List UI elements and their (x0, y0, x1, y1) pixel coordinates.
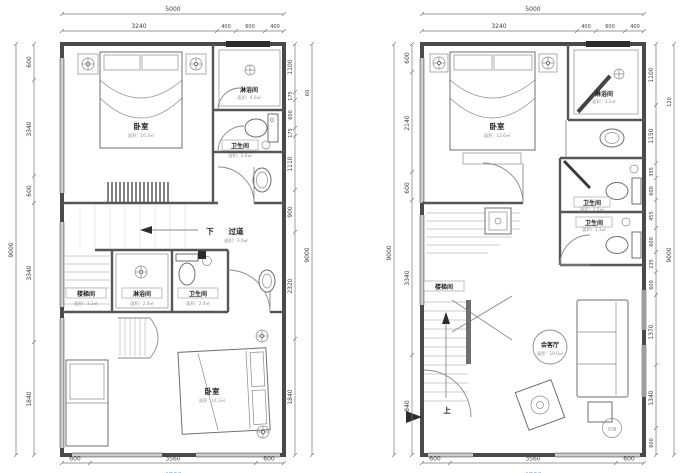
room-label-living: 会客厅 (541, 341, 559, 349)
coffee-table-icon (515, 380, 564, 431)
room-label-bath: 卫生间 (189, 290, 207, 298)
dim-label: 600 (649, 280, 655, 290)
room-area-label: 面积：14.2㎡ (199, 397, 226, 404)
dim-label: 9000 (386, 245, 393, 260)
ceiling-lamp-icon (542, 57, 554, 69)
window-lintel (226, 41, 270, 47)
ceiling-lamp-icon (256, 330, 268, 342)
stairs-icon (108, 182, 168, 202)
door-arc (560, 235, 590, 265)
floor-plan-sheet: 卧室 面积：16.3㎡ 淋浴间 面积：4.0㎡ 卫生间 面积：2.6㎡ 下 过道… (0, 0, 694, 473)
dim-label: 400 (630, 24, 640, 30)
dim-label: 600 (404, 52, 411, 64)
dim-label: 1840 (26, 391, 33, 406)
ceiling-lamp-icon (135, 266, 147, 278)
dim-label: 9000 (8, 242, 15, 257)
dim-label: 1110 (287, 156, 294, 171)
sink-icon (253, 168, 271, 192)
dim-label: 600 (263, 456, 275, 463)
dim-label: 9000 (304, 247, 311, 262)
room-label-bath: 卫生间 (231, 142, 249, 150)
appliance (198, 251, 206, 259)
ceiling-lamp-icon (82, 58, 94, 70)
room-label-bedroom: 卧室 (134, 121, 149, 131)
room-label-shower: 淋浴间 (595, 90, 613, 98)
room-label-bath: 卫生间 (583, 199, 601, 207)
dim-label: 60 (305, 90, 311, 96)
door-leaf (406, 411, 422, 423)
dim-label: 600 (649, 237, 655, 247)
stairs-down-label: 下 (206, 227, 214, 236)
dim-label: 600 (649, 438, 655, 448)
dim-label: 900 (287, 206, 294, 218)
dim-label: 3560 (525, 456, 540, 463)
room-label-shower: 淋浴间 (240, 86, 258, 94)
room-area-label: 面积：19.0㎡ (537, 350, 564, 357)
dim-label: 600 (649, 186, 655, 196)
room-area-label: 面积：1.3㎡ (582, 226, 606, 233)
stairs-icon (118, 318, 158, 358)
stair-break-line (452, 296, 512, 340)
window-lintel (586, 41, 630, 47)
ceiling-lamp-icon (190, 58, 202, 70)
room-area-label: 面积：2.8㎡ (130, 300, 154, 307)
dim-label: 3340 (26, 265, 33, 280)
dim-label: 175 (288, 128, 294, 138)
dim-label: 400 (270, 24, 280, 30)
room-area-label: 面积：12.6㎡ (484, 132, 511, 139)
dim-label: 455 (649, 211, 655, 221)
ceiling-lamp-icon (245, 65, 255, 75)
dim-label: 1150 (648, 128, 655, 143)
dim-label: 3340 (404, 270, 411, 285)
dim-label: 3240 (131, 23, 146, 30)
dim-label: 600 (245, 24, 255, 30)
dim-label: 5000 (165, 6, 180, 13)
dim-label: 600 (26, 185, 33, 197)
door-arc (483, 163, 523, 203)
dim-label: 1840 (287, 389, 294, 404)
room-area-label: 面积：3.2㎡ (592, 98, 616, 105)
floor-plan-right: 空调 卧室 面积：12.6㎡ 淋浴间 面积：3.2㎡ 卫生间 面积：1.5㎡ 卫… (386, 6, 676, 473)
toilet-icon (606, 232, 641, 258)
fixtures-right: 空调 (406, 50, 641, 438)
up-arrow-icon (442, 312, 450, 398)
dim-label: 335 (649, 167, 655, 177)
sink-icon (259, 270, 275, 292)
door-leaf (564, 161, 590, 188)
living-room-bubble: 会客厅 面积：19.0㎡ (533, 330, 567, 364)
toilet-icon (176, 254, 198, 285)
room-area-label: 面积：2.4㎡ (186, 300, 210, 307)
dim-label: 600 (26, 56, 33, 68)
dim-label: 1100 (648, 67, 655, 82)
dim-label: 600 (605, 24, 615, 30)
floor-plan-left: 卧室 面积：16.3㎡ 淋浴间 面积：4.0㎡ 卫生间 面积：2.6㎡ 下 过道… (8, 6, 314, 473)
bed-icon (450, 52, 535, 164)
room-label-bedroom: 卧室 (490, 121, 505, 131)
shower-tray (116, 254, 168, 308)
dim-label: 400 (221, 24, 231, 30)
room-label-bedroom: 卧室 (205, 386, 220, 396)
dim-label: 1340 (648, 390, 655, 405)
dim-label: 1100 (287, 59, 294, 74)
dim-label: 840 (404, 400, 411, 412)
room-area-label: 面积：2.6㎡ (228, 152, 252, 159)
dim-label: 120 (667, 97, 673, 107)
stair-railing (466, 300, 471, 364)
room-label-stairwell: 楼梯间 (77, 290, 95, 298)
dim-label: 3240 (491, 23, 506, 30)
drain-icon (630, 165, 638, 173)
room-label-stairwell: 楼梯间 (435, 283, 453, 291)
bed-icon (178, 348, 270, 434)
sofa-icon (577, 300, 628, 397)
dim-label: 600 (404, 182, 411, 194)
dim-label: 600 (288, 110, 294, 120)
wardrobe (66, 360, 108, 446)
toilet-icon (606, 178, 641, 204)
door-arc (218, 167, 254, 203)
dim-label: 400 (581, 24, 591, 30)
dim-label: 5000 (525, 6, 540, 13)
room-area-label: 面积：4.0㎡ (237, 94, 261, 101)
room-area-label: 面积：3.0㎡ (224, 237, 248, 244)
stairs-up-label: 上 (443, 405, 451, 415)
drain-icon (622, 218, 630, 226)
room-area-label: 面积：16.3㎡ (128, 132, 155, 139)
ceiling-lamp-icon (257, 426, 269, 438)
dim-label: 600 (69, 456, 81, 463)
sink-icon (600, 129, 624, 147)
room-label-shower: 淋浴间 (133, 290, 151, 298)
room-area-label: 面积：3.1㎡ (74, 300, 98, 307)
dim-label: 2320 (287, 278, 294, 293)
dim-label: 175 (288, 91, 294, 101)
dim-label: 9000 (666, 247, 673, 262)
laundry-sink (485, 208, 511, 234)
dim-label: 3340 (26, 121, 33, 136)
room-label-corridor: 过道 (229, 226, 244, 236)
dim-label: 3560 (165, 456, 180, 463)
ceiling-lamp-icon (433, 57, 445, 69)
room-label-bath: 卫生间 (585, 219, 603, 227)
dim-label: 235 (649, 259, 655, 269)
room-area-label: 面积：1.5㎡ (580, 206, 604, 213)
floor-plan-drawing: 卧室 面积：16.3㎡ 淋浴间 面积：4.0㎡ 卫生间 面积：2.6㎡ 下 过道… (0, 0, 694, 473)
drain-icon (262, 141, 270, 149)
dim-label: 1370 (648, 324, 655, 339)
dim-label: 600 (429, 456, 441, 463)
dim-label: 2140 (404, 115, 411, 130)
ac-label: 空调 (608, 426, 616, 433)
down-arrow-icon (140, 226, 198, 234)
toilet-icon (245, 114, 278, 142)
dim-label: 600 (623, 456, 635, 463)
